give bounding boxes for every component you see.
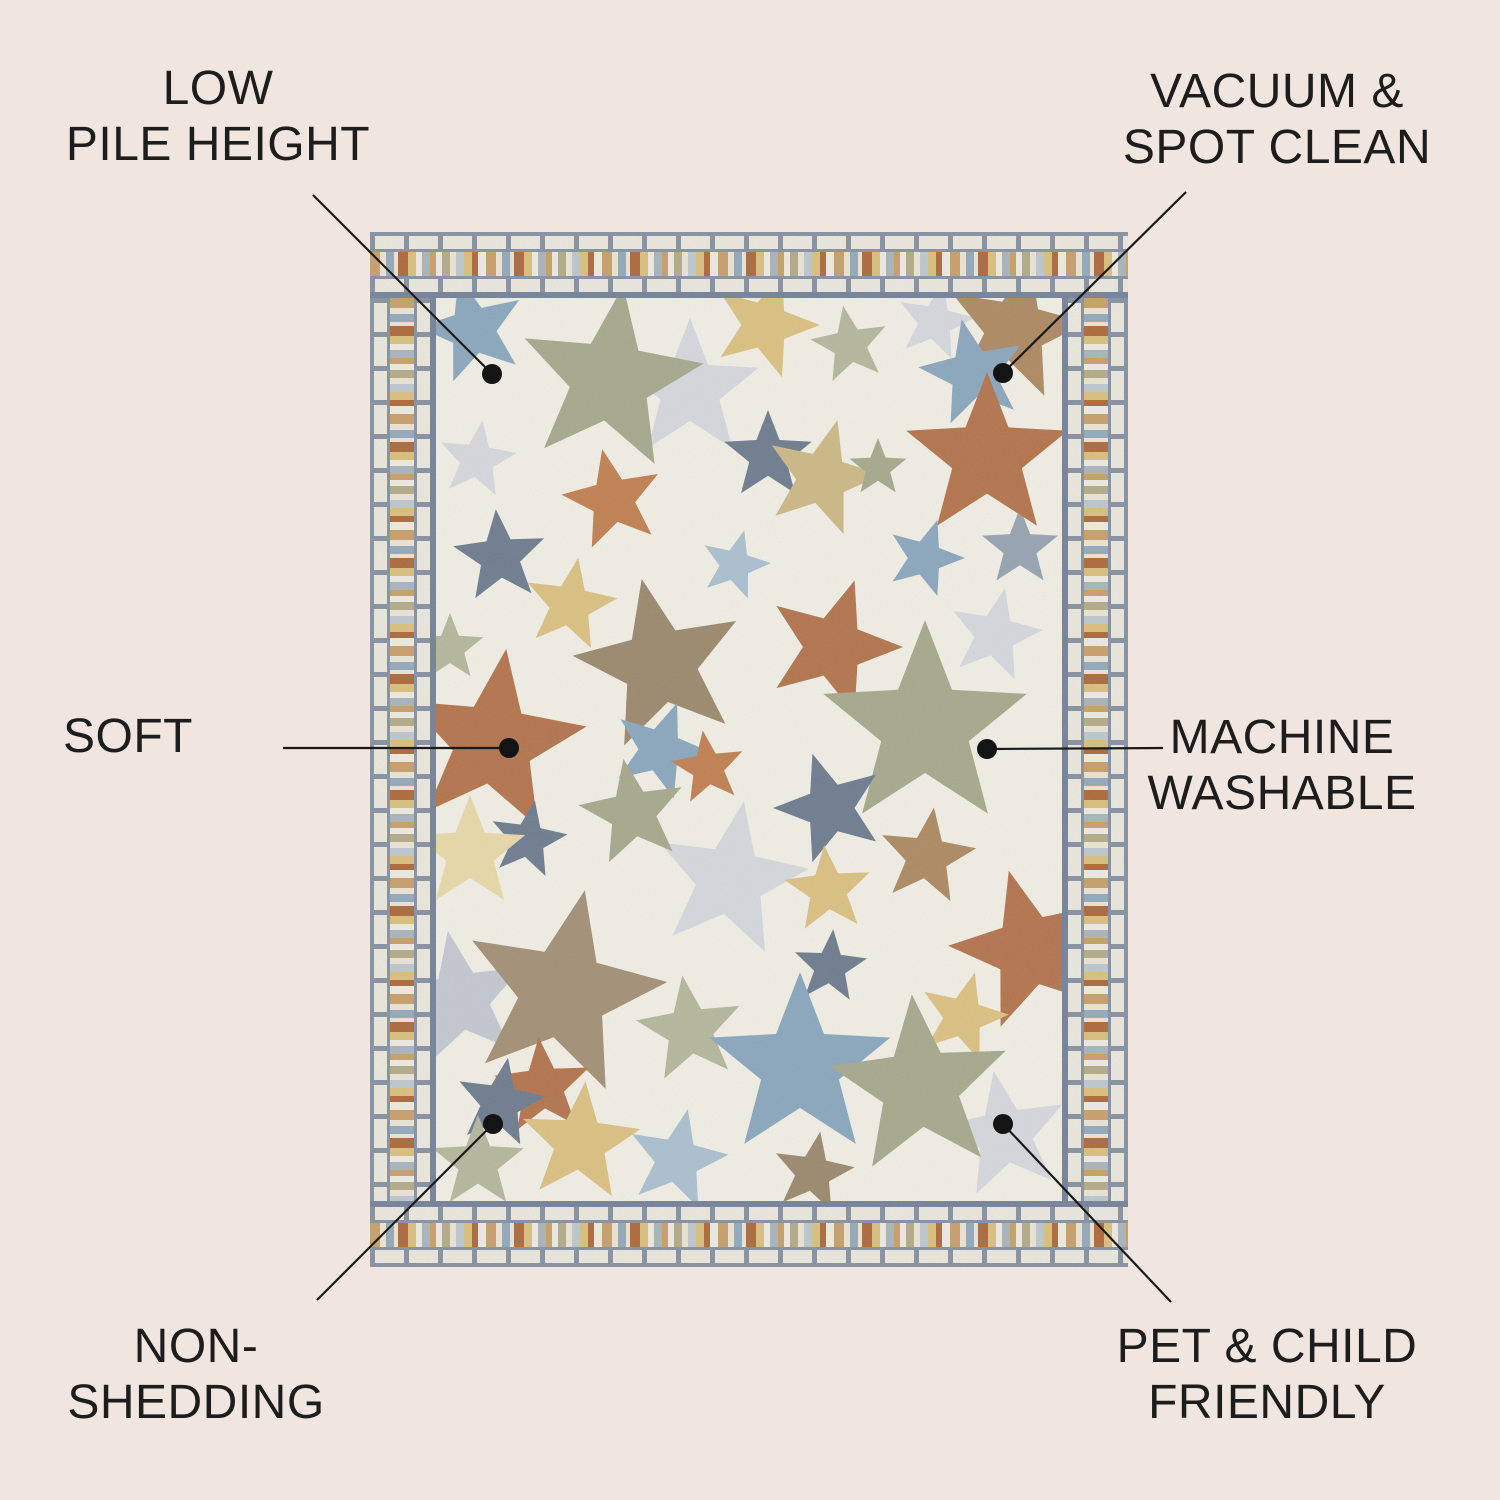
leader-dot-non-shedding <box>483 1114 503 1134</box>
label-non-shedding: NON- SHEDDING <box>67 1319 324 1431</box>
leader-line-vacuum-spot-clean <box>1003 192 1186 373</box>
label-low-pile-height: LOW PILE HEIGHT <box>66 61 370 173</box>
label-line: SHEDDING <box>67 1375 324 1431</box>
label-pet-child-friendly: PET & CHILD FRIENDLY <box>1117 1319 1418 1431</box>
leader-dot-low-pile-height <box>482 364 502 384</box>
leader-line-non-shedding <box>317 1124 493 1300</box>
leader-dot-pet-child-friendly <box>993 1114 1013 1134</box>
leader-line-pet-child-friendly <box>1003 1124 1171 1302</box>
label-line: SOFT <box>63 709 193 765</box>
label-line: PILE HEIGHT <box>66 117 370 173</box>
leader-line-machine-washable <box>987 748 1163 749</box>
label-line: NON- <box>67 1319 324 1375</box>
leader-dot-vacuum-spot-clean <box>993 363 1013 383</box>
label-line: PET & CHILD <box>1117 1319 1418 1375</box>
label-line: FRIENDLY <box>1117 1375 1418 1431</box>
leader-dot-soft <box>499 738 519 758</box>
label-line: SPOT CLEAN <box>1123 120 1431 176</box>
label-line: VACUUM & <box>1123 64 1431 120</box>
product-feature-infographic: LOW PILE HEIGHT VACUUM & SPOT CLEAN SOFT… <box>0 0 1500 1500</box>
label-vacuum-spot-clean: VACUUM & SPOT CLEAN <box>1123 64 1431 176</box>
label-line: WASHABLE <box>1148 766 1417 822</box>
label-soft: SOFT <box>63 709 193 765</box>
label-line: LOW <box>66 61 370 117</box>
label-line: MACHINE <box>1148 710 1417 766</box>
leader-dot-machine-washable <box>977 739 997 759</box>
leader-line-low-pile-height <box>313 195 492 374</box>
label-machine-washable: MACHINE WASHABLE <box>1148 710 1417 822</box>
